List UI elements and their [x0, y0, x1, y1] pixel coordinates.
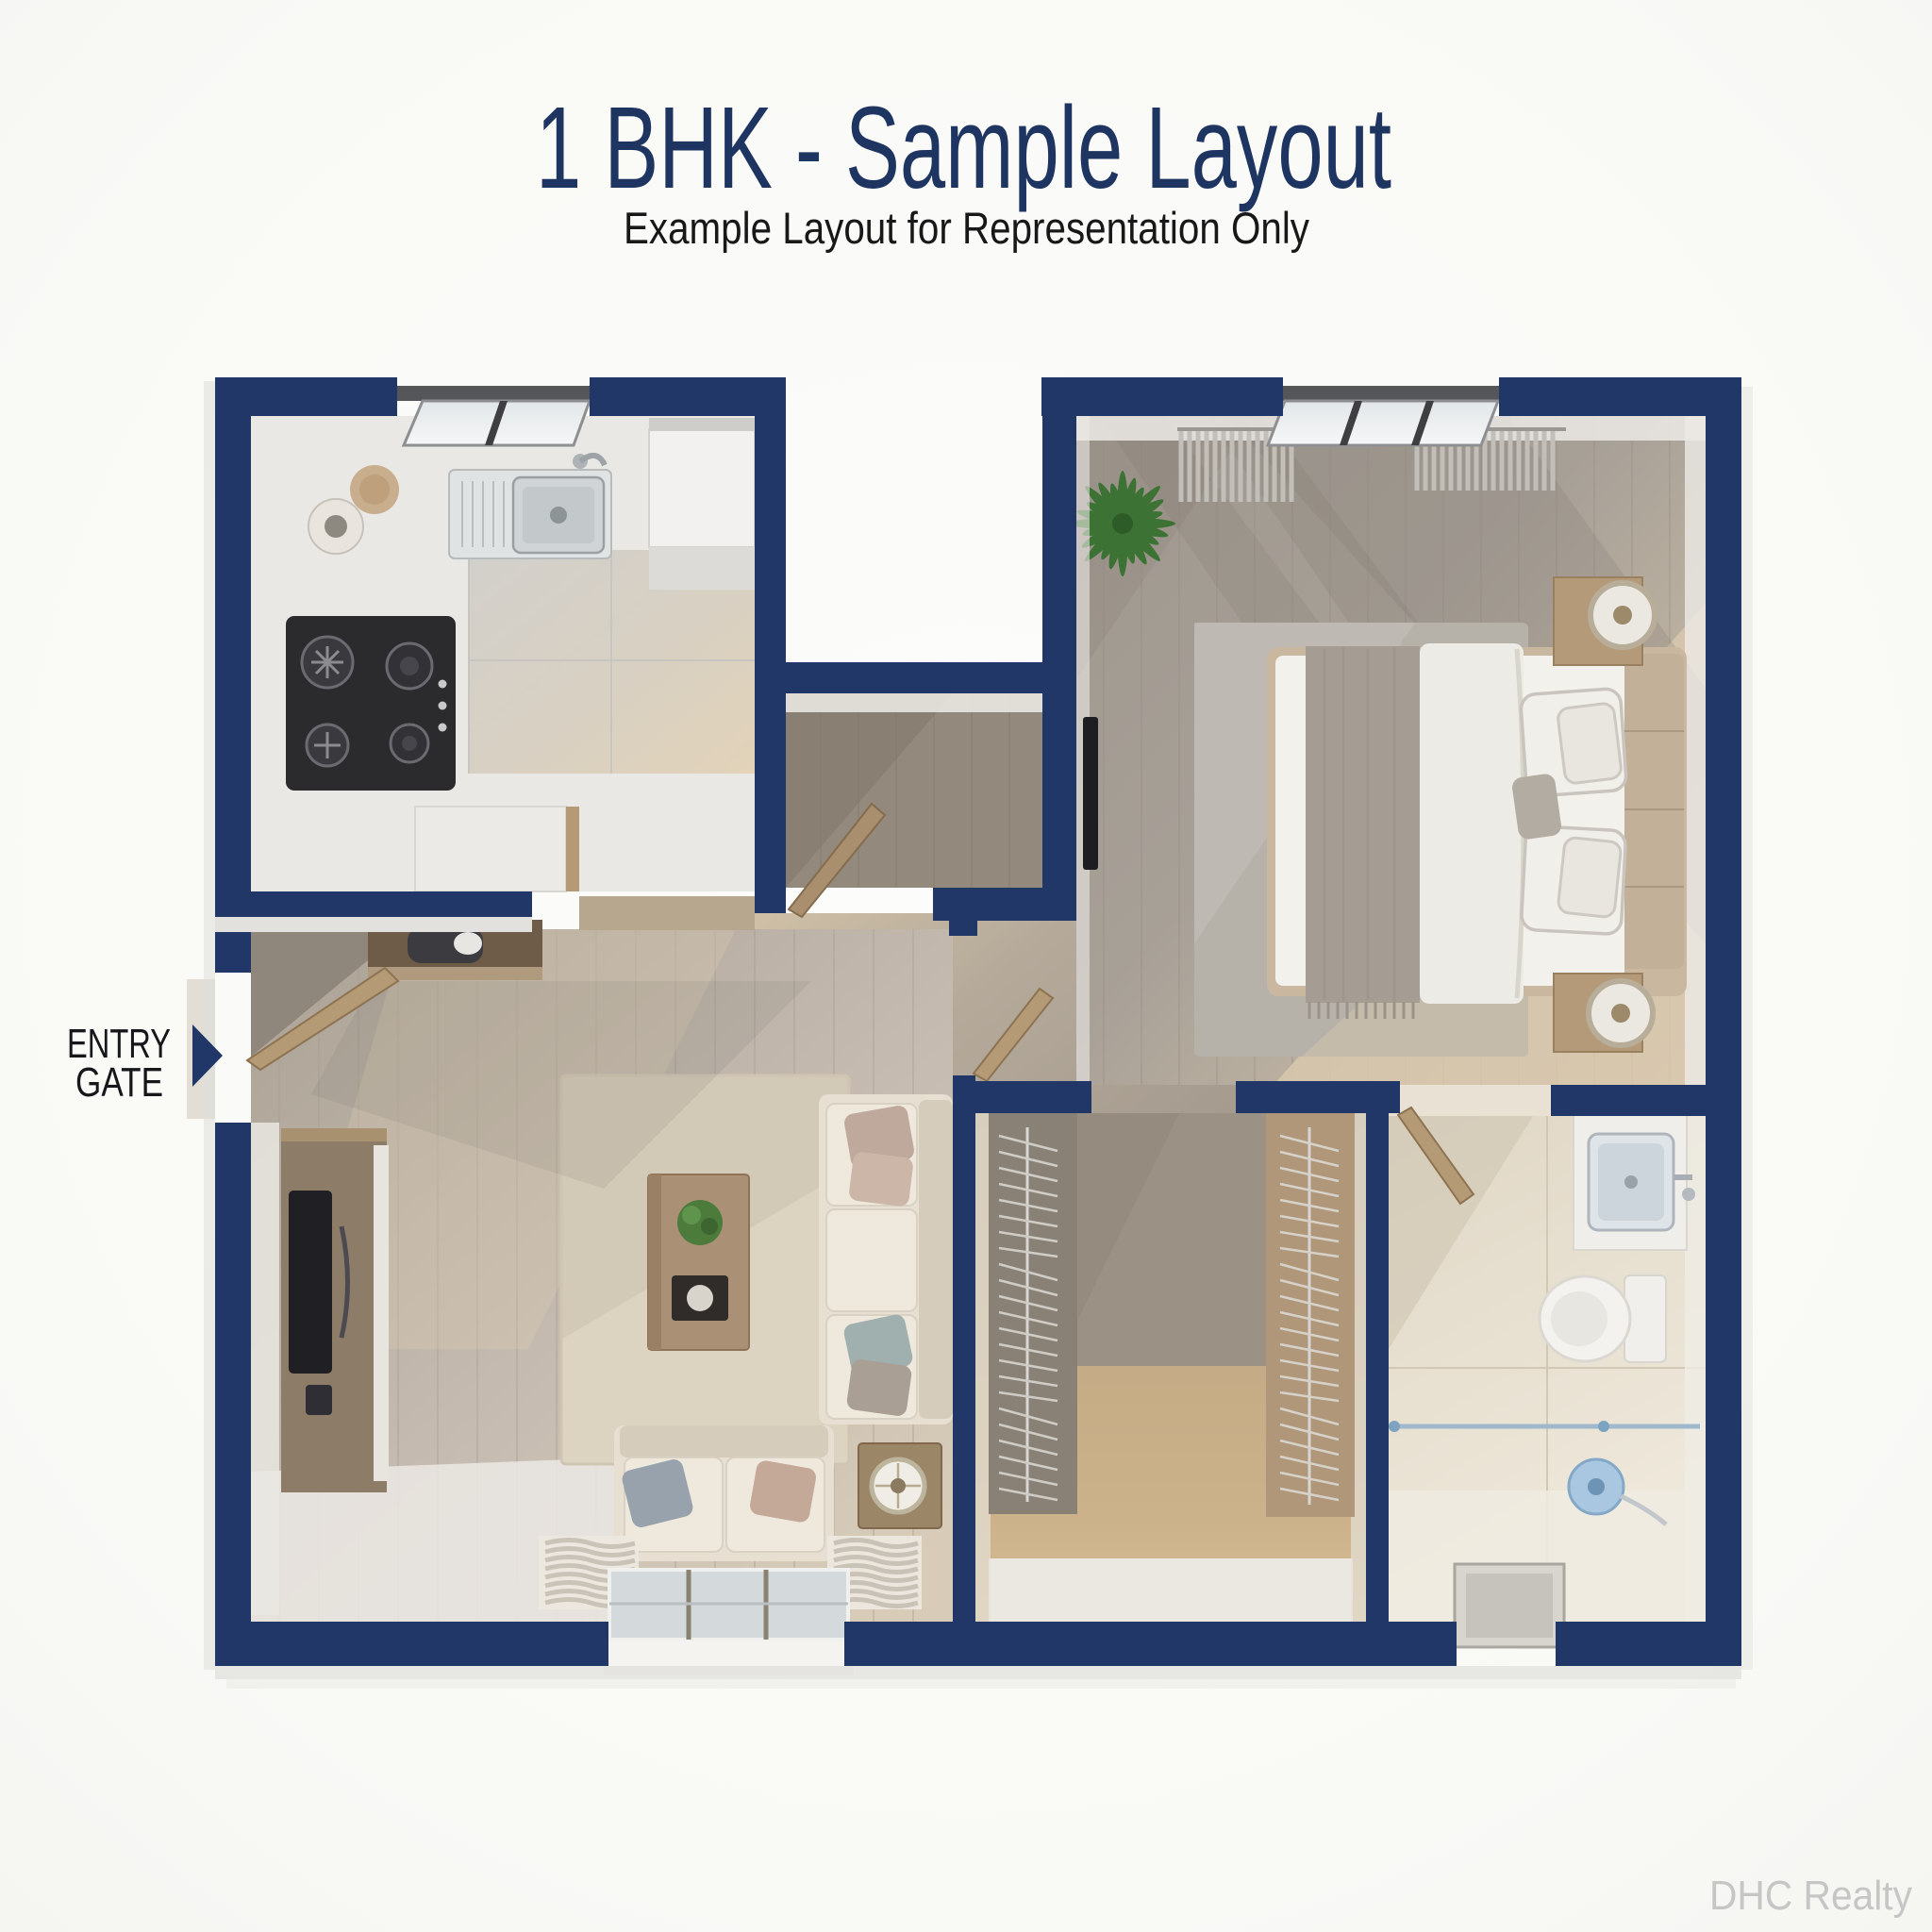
- svg-text:DHC Realty: DHC Realty: [1709, 1873, 1912, 1919]
- svg-text:Example Layout for Representat: Example Layout for Representation Only: [624, 203, 1309, 253]
- svg-text:1 BHK - Sample Layout: 1 BHK - Sample Layout: [536, 84, 1391, 213]
- svg-text:GATE: GATE: [75, 1059, 163, 1106]
